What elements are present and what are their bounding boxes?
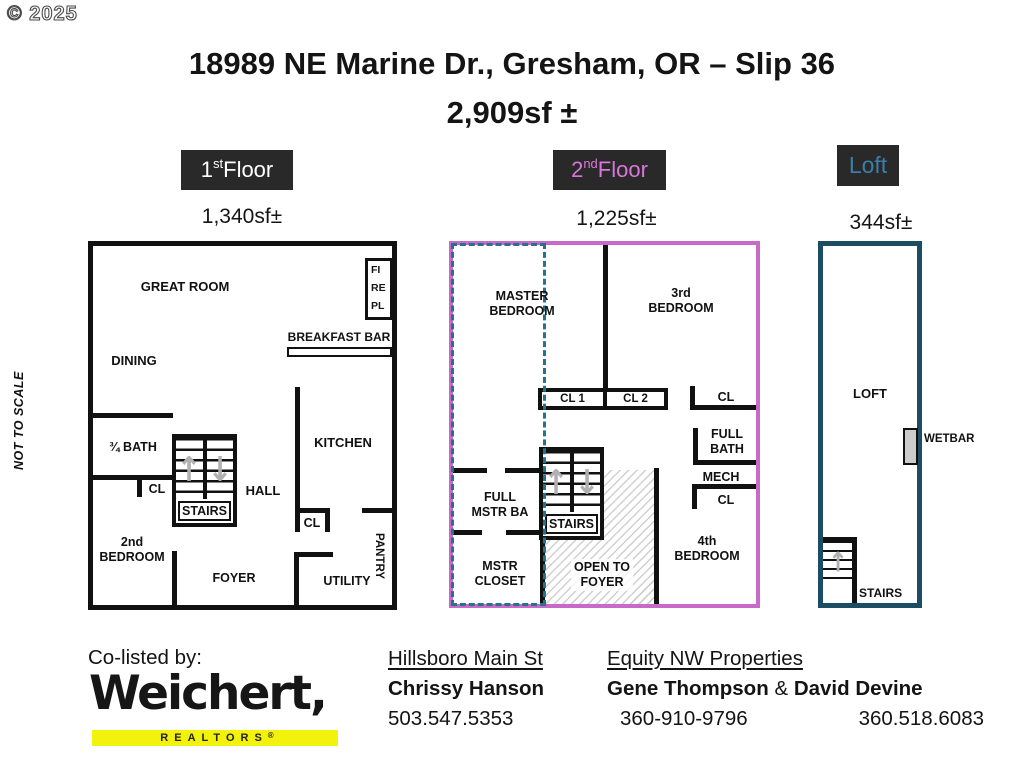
fireplace-label: FI: [371, 261, 390, 279]
room-label-loft: LOFT: [823, 386, 917, 401]
up-arrow-icon: ↑: [827, 549, 847, 576]
wetbar-fixture: [903, 428, 918, 465]
wall: [690, 405, 756, 410]
room-label-mech: MECH: [691, 470, 751, 485]
agent-phones-row: 360-910-9796 360.518.6083: [612, 707, 984, 731]
room-label-breakfast-bar: BREAKFAST BAR: [279, 330, 399, 345]
page-subtitle-area: 2,909sf ±: [0, 95, 1024, 131]
office-name-equity-nw: Equity NW Properties: [607, 647, 803, 671]
wall: [506, 530, 540, 535]
wall: [453, 468, 487, 473]
room-label-kitchen-closet: CL: [292, 516, 332, 531]
agent-phone-gene-thompson: 360-910-9796: [620, 707, 748, 731]
tab-first-ordinal: st: [213, 156, 223, 171]
stair-run-down: ↓: [570, 451, 601, 512]
room-label-hall: HALL: [233, 483, 293, 498]
stairs-label: STAIRS: [178, 501, 231, 521]
wall: [505, 468, 540, 473]
room-label-master-closet: MSTR CLOSET: [450, 559, 550, 589]
office-name-hillsboro: Hillsboro Main St: [388, 647, 543, 671]
copyright-watermark: © 2025: [7, 3, 78, 26]
room-label-great-room: GREAT ROOM: [135, 279, 235, 294]
room-label-bedroom2: 2nd BEDROOM: [93, 535, 171, 565]
stair-run-up: ↑: [176, 438, 203, 499]
page-title: 18989 NE Marine Dr., Gresham, OR – Slip …: [0, 46, 1024, 82]
fireplace-box: FI RE PL: [365, 258, 393, 320]
agent-name-gene-thompson: Gene Thompson: [607, 677, 769, 700]
breakfast-bar-counter: [287, 347, 392, 357]
stairs-label: STAIRS: [545, 514, 598, 534]
registered-trademark-icon: ®: [268, 731, 274, 740]
weichert-logo: Weichert,: [89, 666, 326, 722]
up-arrow-icon: ↑: [177, 452, 202, 486]
wall: [294, 552, 299, 605]
room-label-loft-stairs: STAIRS: [859, 586, 917, 601]
wall: [172, 551, 177, 605]
room-label-dining: DINING: [94, 353, 174, 368]
wall: [93, 475, 172, 480]
agent-phone-chrissy-hanson: 503.547.5353: [388, 707, 513, 731]
realtors-label: REALTORS: [156, 732, 268, 744]
closet-2: CL 2: [607, 392, 664, 406]
weichert-realtors-banner: REALTORS ®: [92, 730, 338, 746]
ampersand: &: [774, 677, 788, 700]
tab-first-num: 1: [201, 157, 213, 183]
tab-first-floor: 1st Floor: [181, 150, 293, 190]
room-label-foyer: FOYER: [204, 571, 264, 586]
second-floor-plan: CL 1 CL 2 ↑ ↓ STAIRS MASTER BEDROOM 3rd …: [449, 241, 760, 608]
down-arrow-icon: ↓: [207, 452, 232, 486]
room-label-closet-right: CL: [696, 390, 756, 405]
room-label-utility: UTILITY: [307, 574, 387, 589]
stairs-first-floor: ↑ ↓ STAIRS: [172, 434, 237, 527]
tab-first-word: Floor: [223, 157, 273, 183]
tab-loft: Loft: [837, 145, 899, 186]
wall: [453, 530, 482, 535]
wall: [294, 552, 333, 557]
first-floor-plan: FI RE PL ↑ ↓ STAIRS GREAT ROOM BREAKFAST…: [88, 241, 397, 610]
agent-name-chrissy-hanson: Chrissy Hanson: [388, 677, 544, 701]
wall: [93, 413, 173, 418]
room-label-wetbar: WETBAR: [924, 432, 974, 447]
tab-second-word: Floor: [598, 157, 648, 183]
wall: [693, 460, 756, 465]
closet-1: CL 1: [542, 392, 603, 406]
loft-plan: WETBAR LOFT ↑ STAIRS: [818, 241, 922, 608]
second-floor-area: 1,225sf±: [560, 207, 673, 231]
room-label-open-to-foyer: OPEN TO FOYER: [552, 559, 652, 591]
tab-second-num: 2: [571, 157, 583, 183]
room-label-bath: ¾ BATH: [93, 440, 173, 455]
wall: [603, 245, 608, 392]
room-label-bedroom4: 4th BEDROOM: [657, 534, 757, 564]
first-floor-area: 1,340sf±: [186, 205, 298, 229]
room-label-master-bedroom: MASTER BEDROOM: [472, 289, 572, 319]
stair-run-down: ↓: [203, 438, 234, 499]
room-label-full-bath: FULL BATH: [697, 427, 757, 457]
tab-second-ordinal: nd: [583, 156, 597, 171]
stair-run-up: ↑: [823, 541, 852, 585]
room-label-kitchen: KITCHEN: [293, 435, 393, 450]
stairs-loft: ↑: [823, 537, 857, 603]
not-to-scale-note: NOT TO SCALE: [12, 360, 26, 470]
agent-names-gene-david: Gene Thompson & David Devine: [607, 677, 923, 701]
loft-area: 344sf±: [831, 211, 931, 235]
wall: [362, 508, 392, 513]
agent-name-david-devine: David Devine: [794, 677, 923, 700]
agent-phone-david-devine: 360.518.6083: [859, 707, 984, 731]
room-label-closet-small: CL: [696, 493, 756, 508]
tab-second-floor: 2nd Floor: [553, 150, 666, 190]
down-arrow-icon: ↓: [574, 465, 599, 499]
room-label-closet: CL: [137, 482, 177, 497]
room-label-bedroom3: 3rd BEDROOM: [631, 286, 731, 316]
closet-box: CL 1 CL 2: [538, 388, 668, 410]
room-label-master-bath: FULL MSTR BA: [450, 490, 550, 520]
